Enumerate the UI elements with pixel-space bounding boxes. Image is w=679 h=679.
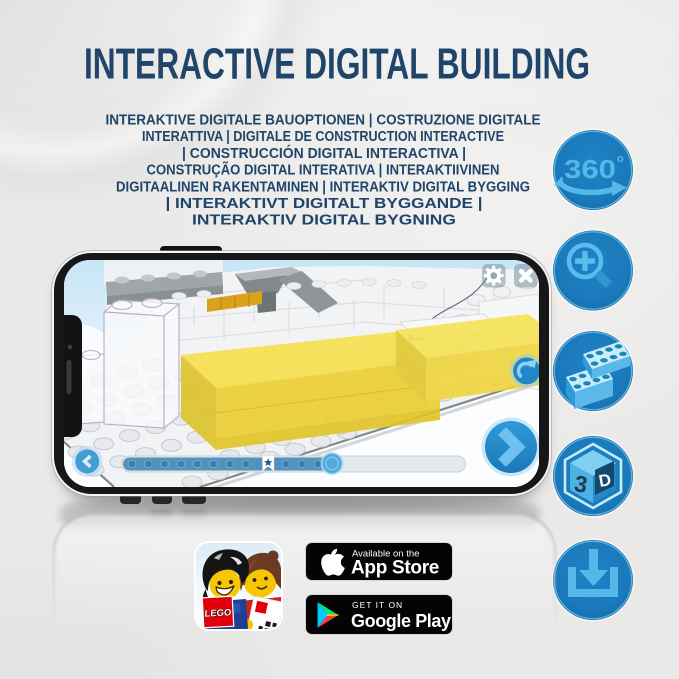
svg-text:o: o (617, 153, 624, 165)
svg-text:360: 360 (564, 154, 616, 184)
svg-text:LEGO: LEGO (204, 607, 232, 619)
svg-text:GET IT ON: GET IT ON (352, 600, 403, 610)
svg-text:Google Play: Google Play (351, 611, 451, 631)
svg-text:App Store: App Store (351, 558, 439, 579)
